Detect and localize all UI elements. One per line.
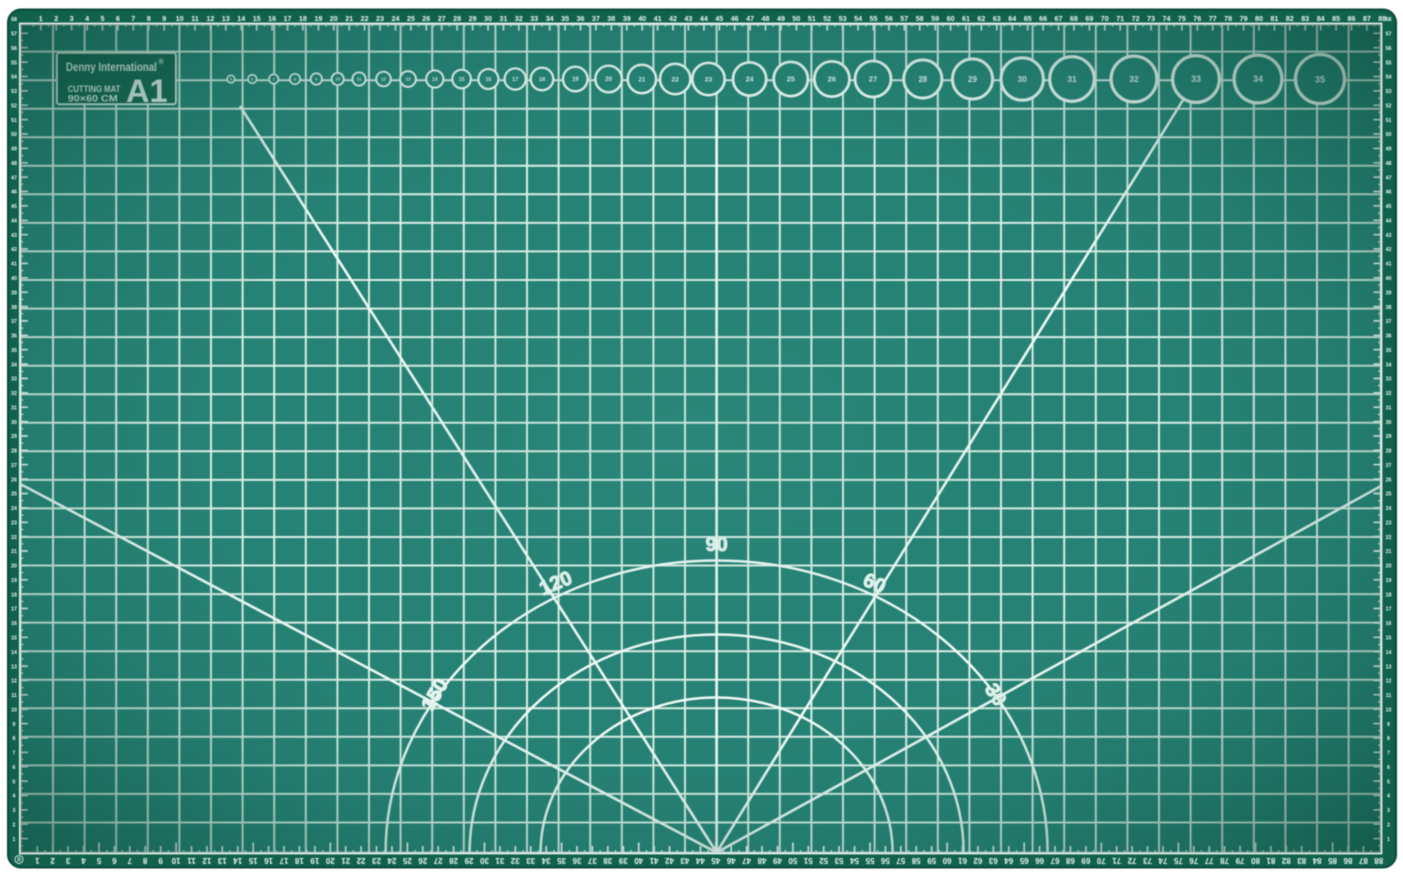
- svg-text:42: 42: [669, 14, 677, 23]
- svg-text:23: 23: [1386, 521, 1392, 527]
- svg-text:9: 9: [162, 14, 166, 23]
- svg-text:70: 70: [1101, 14, 1109, 23]
- svg-text:56: 56: [11, 46, 17, 52]
- svg-text:10: 10: [11, 707, 17, 713]
- svg-text:60: 60: [947, 14, 955, 23]
- svg-text:19: 19: [314, 14, 322, 23]
- svg-text:36: 36: [11, 334, 17, 340]
- svg-text:8: 8: [147, 14, 151, 23]
- svg-text:27: 27: [438, 14, 446, 23]
- svg-text:37: 37: [1386, 319, 1392, 325]
- svg-text:69: 69: [1081, 856, 1090, 865]
- svg-text:26: 26: [1386, 477, 1392, 483]
- svg-text:75: 75: [1173, 856, 1182, 865]
- svg-text:86: 86: [1348, 14, 1356, 23]
- svg-text:39: 39: [1386, 290, 1392, 296]
- svg-text:33: 33: [1386, 377, 1392, 383]
- svg-text:54: 54: [850, 856, 859, 865]
- svg-text:18: 18: [11, 592, 17, 598]
- svg-text:40: 40: [11, 276, 17, 282]
- svg-text:41: 41: [654, 14, 662, 23]
- svg-text:33: 33: [11, 377, 17, 383]
- svg-text:11: 11: [11, 693, 17, 699]
- svg-text:23: 23: [376, 14, 384, 23]
- svg-text:34: 34: [1386, 362, 1392, 368]
- svg-text:42: 42: [665, 856, 674, 865]
- svg-text:32: 32: [1386, 391, 1392, 397]
- svg-text:43: 43: [680, 856, 689, 865]
- svg-text:4: 4: [1387, 794, 1390, 800]
- svg-text:45: 45: [1386, 204, 1392, 210]
- svg-text:32: 32: [515, 14, 523, 23]
- svg-text:44: 44: [1386, 219, 1392, 225]
- svg-text:21: 21: [1386, 549, 1392, 555]
- svg-text:41: 41: [1386, 262, 1392, 268]
- svg-text:35: 35: [561, 14, 569, 23]
- svg-text:16: 16: [264, 856, 273, 865]
- svg-text:16: 16: [11, 621, 17, 627]
- svg-text:26: 26: [11, 477, 17, 483]
- svg-text:34: 34: [11, 362, 17, 368]
- svg-text:74: 74: [1158, 856, 1167, 865]
- svg-text:31: 31: [11, 405, 17, 411]
- svg-text:3: 3: [1387, 808, 1390, 814]
- svg-text:77: 77: [1209, 14, 1217, 23]
- svg-text:5: 5: [13, 779, 16, 785]
- svg-text:32: 32: [510, 856, 519, 865]
- svg-text:63: 63: [993, 14, 1001, 23]
- svg-text:15: 15: [11, 636, 17, 642]
- svg-text:26: 26: [418, 856, 427, 865]
- svg-text:39: 39: [618, 856, 627, 865]
- svg-text:13: 13: [217, 856, 226, 865]
- svg-text:51: 51: [11, 118, 17, 124]
- svg-text:60: 60: [942, 856, 951, 865]
- svg-text:48: 48: [762, 14, 770, 23]
- svg-text:52: 52: [11, 103, 17, 109]
- svg-text:14: 14: [237, 14, 245, 23]
- svg-text:21: 21: [345, 14, 353, 23]
- svg-text:13: 13: [11, 664, 17, 670]
- svg-text:40: 40: [1386, 276, 1392, 282]
- svg-text:17: 17: [279, 856, 288, 865]
- svg-text:43: 43: [684, 14, 692, 23]
- svg-text:23: 23: [372, 856, 381, 865]
- svg-text:29: 29: [464, 856, 473, 865]
- svg-text:25: 25: [402, 856, 411, 865]
- svg-text:14: 14: [233, 856, 242, 865]
- svg-text:54: 54: [11, 75, 17, 81]
- svg-text:29: 29: [1386, 434, 1392, 440]
- svg-text:7: 7: [1387, 751, 1390, 757]
- svg-text:17: 17: [11, 607, 17, 613]
- svg-text:80: 80: [1251, 856, 1260, 865]
- svg-text:18: 18: [294, 856, 303, 865]
- svg-text:6: 6: [112, 856, 117, 865]
- svg-text:21: 21: [341, 856, 350, 865]
- svg-text:55: 55: [11, 60, 17, 66]
- svg-text:29: 29: [11, 434, 17, 440]
- svg-text:5: 5: [1387, 779, 1390, 785]
- svg-text:47: 47: [1386, 175, 1392, 181]
- svg-text:36: 36: [577, 14, 585, 23]
- svg-text:54: 54: [1386, 75, 1392, 81]
- svg-text:16: 16: [268, 14, 276, 23]
- svg-text:36: 36: [1386, 334, 1392, 340]
- svg-text:56: 56: [1386, 46, 1392, 52]
- svg-text:53: 53: [834, 856, 843, 865]
- svg-text:9: 9: [13, 722, 16, 728]
- svg-text:53: 53: [839, 14, 847, 23]
- svg-text:9: 9: [1387, 722, 1390, 728]
- svg-text:12: 12: [1386, 679, 1392, 685]
- svg-text:87: 87: [1363, 14, 1371, 23]
- svg-text:31: 31: [1386, 405, 1392, 411]
- svg-text:56: 56: [880, 856, 889, 865]
- svg-text:28: 28: [1386, 449, 1392, 455]
- svg-text:57: 57: [1386, 32, 1392, 38]
- svg-text:12: 12: [206, 14, 214, 23]
- svg-text:23: 23: [11, 521, 17, 527]
- svg-text:48: 48: [757, 856, 766, 865]
- svg-text:65: 65: [1024, 14, 1032, 23]
- svg-text:48: 48: [11, 161, 17, 167]
- svg-text:1: 1: [39, 14, 43, 23]
- svg-text:24: 24: [387, 856, 396, 865]
- svg-text:24: 24: [1386, 506, 1392, 512]
- svg-text:67: 67: [1055, 14, 1063, 23]
- svg-text:55: 55: [1386, 60, 1392, 66]
- svg-text:51: 51: [1386, 118, 1392, 124]
- svg-text:15: 15: [253, 14, 261, 23]
- svg-text:45: 45: [711, 856, 720, 865]
- svg-text:41: 41: [649, 856, 658, 865]
- svg-text:37: 37: [11, 319, 17, 325]
- svg-text:16: 16: [1386, 621, 1392, 627]
- svg-text:55: 55: [870, 14, 878, 23]
- svg-text:19: 19: [11, 578, 17, 584]
- svg-text:66: 66: [1035, 856, 1044, 865]
- svg-text:57: 57: [900, 14, 908, 23]
- svg-text:31: 31: [495, 856, 504, 865]
- svg-text:83: 83: [1297, 856, 1306, 865]
- svg-text:43: 43: [1386, 233, 1392, 239]
- svg-text:15: 15: [1386, 636, 1392, 642]
- svg-text:59: 59: [927, 856, 936, 865]
- svg-text:10: 10: [1386, 707, 1392, 713]
- svg-text:50: 50: [11, 132, 17, 138]
- svg-text:72: 72: [1127, 856, 1136, 865]
- svg-text:17: 17: [284, 14, 292, 23]
- svg-text:47: 47: [742, 856, 751, 865]
- svg-text:42: 42: [11, 247, 17, 253]
- svg-text:52: 52: [823, 14, 831, 23]
- svg-text:31: 31: [499, 14, 507, 23]
- svg-text:11: 11: [191, 14, 199, 23]
- svg-text:35: 35: [557, 856, 566, 865]
- svg-text:64: 64: [1004, 856, 1013, 865]
- svg-text:52: 52: [819, 856, 828, 865]
- svg-text:15: 15: [248, 856, 257, 865]
- svg-text:85: 85: [1328, 856, 1337, 865]
- svg-text:26: 26: [422, 14, 430, 23]
- svg-text:88: 88: [1374, 856, 1383, 865]
- svg-text:2: 2: [54, 14, 58, 23]
- svg-text:49: 49: [773, 856, 782, 865]
- svg-text:83: 83: [1301, 14, 1309, 23]
- svg-text:27: 27: [1386, 463, 1392, 469]
- svg-text:22: 22: [11, 535, 17, 541]
- svg-text:43: 43: [11, 233, 17, 239]
- svg-text:2: 2: [13, 822, 16, 828]
- svg-text:8: 8: [142, 856, 147, 865]
- svg-text:67: 67: [1050, 856, 1059, 865]
- svg-text:21: 21: [11, 549, 17, 555]
- svg-text:4: 4: [81, 856, 86, 865]
- svg-text:62: 62: [973, 856, 982, 865]
- svg-text:6: 6: [1387, 765, 1390, 771]
- svg-text:54: 54: [854, 14, 862, 23]
- svg-text:33: 33: [530, 14, 538, 23]
- svg-text:38: 38: [11, 305, 17, 311]
- svg-text:55: 55: [865, 856, 874, 865]
- svg-text:64: 64: [1008, 14, 1016, 23]
- svg-text:62: 62: [977, 14, 985, 23]
- svg-text:49: 49: [11, 147, 17, 153]
- svg-text:13: 13: [1386, 664, 1392, 670]
- svg-text:71: 71: [1116, 14, 1124, 23]
- svg-text:38: 38: [607, 14, 615, 23]
- svg-text:81: 81: [1266, 856, 1275, 865]
- svg-text:2: 2: [50, 856, 55, 865]
- svg-text:12: 12: [11, 679, 17, 685]
- svg-text:68: 68: [1070, 14, 1078, 23]
- svg-text:78: 78: [1220, 856, 1229, 865]
- svg-text:4: 4: [13, 794, 16, 800]
- svg-text:76: 76: [1189, 856, 1198, 865]
- svg-text:11: 11: [1386, 693, 1392, 699]
- svg-text:14: 14: [1386, 650, 1392, 656]
- svg-text:10: 10: [171, 856, 180, 865]
- svg-text:61: 61: [958, 856, 967, 865]
- svg-text:70: 70: [1096, 856, 1105, 865]
- svg-text:3: 3: [70, 14, 74, 23]
- svg-text:30: 30: [480, 856, 489, 865]
- svg-text:47: 47: [11, 175, 17, 181]
- svg-text:7: 7: [127, 856, 132, 865]
- svg-text:18: 18: [1386, 592, 1392, 598]
- svg-text:63: 63: [988, 856, 997, 865]
- svg-text:58: 58: [916, 14, 924, 23]
- svg-text:11: 11: [187, 856, 196, 865]
- svg-text:46: 46: [11, 190, 17, 196]
- svg-text:9: 9: [158, 856, 163, 865]
- svg-text:24: 24: [392, 14, 400, 23]
- svg-text:7: 7: [13, 751, 16, 757]
- svg-text:57: 57: [896, 856, 905, 865]
- svg-text:29: 29: [469, 14, 477, 23]
- svg-text:51: 51: [803, 856, 812, 865]
- svg-text:71: 71: [1112, 856, 1121, 865]
- svg-text:86: 86: [1343, 856, 1352, 865]
- svg-text:27: 27: [11, 463, 17, 469]
- svg-text:34: 34: [541, 856, 550, 865]
- svg-text:77: 77: [1204, 856, 1213, 865]
- svg-text:79: 79: [1235, 856, 1244, 865]
- svg-text:19: 19: [1386, 578, 1392, 584]
- svg-text:41: 41: [11, 262, 17, 268]
- svg-text:85: 85: [1332, 14, 1340, 23]
- svg-text:28: 28: [11, 449, 17, 455]
- svg-text:25: 25: [407, 14, 415, 23]
- svg-text:47: 47: [746, 14, 754, 23]
- svg-text:35: 35: [1386, 348, 1392, 354]
- svg-text:20: 20: [11, 564, 17, 570]
- svg-text:52: 52: [1386, 103, 1392, 109]
- svg-text:58: 58: [911, 856, 920, 865]
- svg-text:32: 32: [11, 391, 17, 397]
- svg-text:50: 50: [1386, 132, 1392, 138]
- svg-text:81: 81: [1270, 14, 1278, 23]
- svg-text:74: 74: [1163, 14, 1171, 23]
- svg-text:33: 33: [526, 856, 535, 865]
- svg-text:42: 42: [1386, 247, 1392, 253]
- svg-text:75: 75: [1178, 14, 1186, 23]
- svg-text:40: 40: [638, 14, 646, 23]
- svg-text:14: 14: [11, 650, 17, 656]
- svg-text:30: 30: [484, 14, 492, 23]
- svg-text:5: 5: [96, 856, 101, 865]
- svg-text:50: 50: [788, 856, 797, 865]
- svg-text:45: 45: [11, 204, 17, 210]
- svg-text:73: 73: [1143, 856, 1152, 865]
- svg-text:58: 58: [11, 17, 17, 23]
- svg-text:59: 59: [931, 14, 939, 23]
- svg-text:57: 57: [11, 32, 17, 38]
- svg-text:76: 76: [1193, 14, 1201, 23]
- svg-text:61: 61: [962, 14, 970, 23]
- svg-text:3: 3: [65, 856, 70, 865]
- svg-text:82: 82: [1281, 856, 1290, 865]
- svg-text:37: 37: [587, 856, 596, 865]
- svg-text:1: 1: [13, 837, 16, 843]
- svg-text:40: 40: [634, 856, 643, 865]
- svg-text:30: 30: [11, 420, 17, 426]
- svg-text:8: 8: [13, 736, 16, 742]
- svg-text:6: 6: [116, 14, 120, 23]
- svg-text:46: 46: [731, 14, 739, 23]
- svg-text:39: 39: [11, 290, 17, 296]
- svg-text:17: 17: [1386, 607, 1392, 613]
- svg-text:24: 24: [11, 506, 17, 512]
- svg-text:79: 79: [1240, 14, 1248, 23]
- svg-text:66: 66: [1039, 14, 1047, 23]
- svg-text:36: 36: [572, 856, 581, 865]
- svg-text:87: 87: [1358, 856, 1367, 865]
- svg-text:22: 22: [361, 14, 369, 23]
- svg-text:44: 44: [11, 219, 17, 225]
- svg-text:69: 69: [1085, 14, 1093, 23]
- svg-text:8: 8: [1387, 736, 1390, 742]
- svg-text:84: 84: [1312, 856, 1321, 865]
- svg-text:46: 46: [1386, 190, 1392, 196]
- svg-text:72: 72: [1132, 14, 1140, 23]
- svg-text:35: 35: [11, 348, 17, 354]
- svg-text:84: 84: [1317, 14, 1325, 23]
- svg-text:68: 68: [1065, 856, 1074, 865]
- svg-text:22: 22: [1386, 535, 1392, 541]
- svg-text:82: 82: [1286, 14, 1294, 23]
- svg-text:6: 6: [13, 765, 16, 771]
- svg-text:53: 53: [1386, 89, 1392, 95]
- svg-text:1: 1: [1387, 837, 1390, 843]
- svg-text:50: 50: [792, 14, 800, 23]
- svg-text:27: 27: [433, 856, 442, 865]
- svg-text:44: 44: [695, 856, 704, 865]
- svg-text:22: 22: [356, 856, 365, 865]
- svg-text:2: 2: [1387, 822, 1390, 828]
- svg-text:25: 25: [1386, 492, 1392, 498]
- svg-text:49: 49: [1386, 147, 1392, 153]
- svg-text:38: 38: [1386, 305, 1392, 311]
- svg-text:65: 65: [1019, 856, 1028, 865]
- svg-text:20: 20: [1386, 564, 1392, 570]
- svg-text:30: 30: [1386, 420, 1392, 426]
- svg-text:12: 12: [202, 856, 211, 865]
- svg-text:5: 5: [101, 14, 105, 23]
- svg-text:51: 51: [808, 14, 816, 23]
- svg-text:80: 80: [1255, 14, 1263, 23]
- svg-text:3: 3: [13, 808, 16, 814]
- svg-text:28: 28: [453, 14, 461, 23]
- svg-text:10: 10: [176, 14, 184, 23]
- svg-text:13: 13: [222, 14, 230, 23]
- svg-text:7: 7: [131, 14, 135, 23]
- svg-text:20: 20: [325, 856, 334, 865]
- svg-text:48: 48: [1386, 161, 1392, 167]
- svg-text:18: 18: [299, 14, 307, 23]
- svg-text:38: 38: [603, 856, 612, 865]
- svg-text:20: 20: [330, 14, 338, 23]
- svg-text:56: 56: [885, 14, 893, 23]
- svg-text:44: 44: [700, 14, 708, 23]
- svg-text:39: 39: [623, 14, 631, 23]
- svg-text:28: 28: [449, 856, 458, 865]
- svg-text:46: 46: [726, 856, 735, 865]
- svg-text:4: 4: [85, 14, 89, 23]
- svg-text:73: 73: [1147, 14, 1155, 23]
- svg-text:25: 25: [11, 492, 17, 498]
- svg-text:58: 58: [1386, 17, 1392, 23]
- svg-text:49: 49: [777, 14, 785, 23]
- svg-text:78: 78: [1224, 14, 1232, 23]
- svg-text:1: 1: [35, 856, 40, 865]
- svg-text:34: 34: [546, 14, 554, 23]
- svg-text:37: 37: [592, 14, 600, 23]
- svg-text:45: 45: [715, 14, 723, 23]
- svg-text:53: 53: [11, 89, 17, 95]
- svg-text:19: 19: [310, 856, 319, 865]
